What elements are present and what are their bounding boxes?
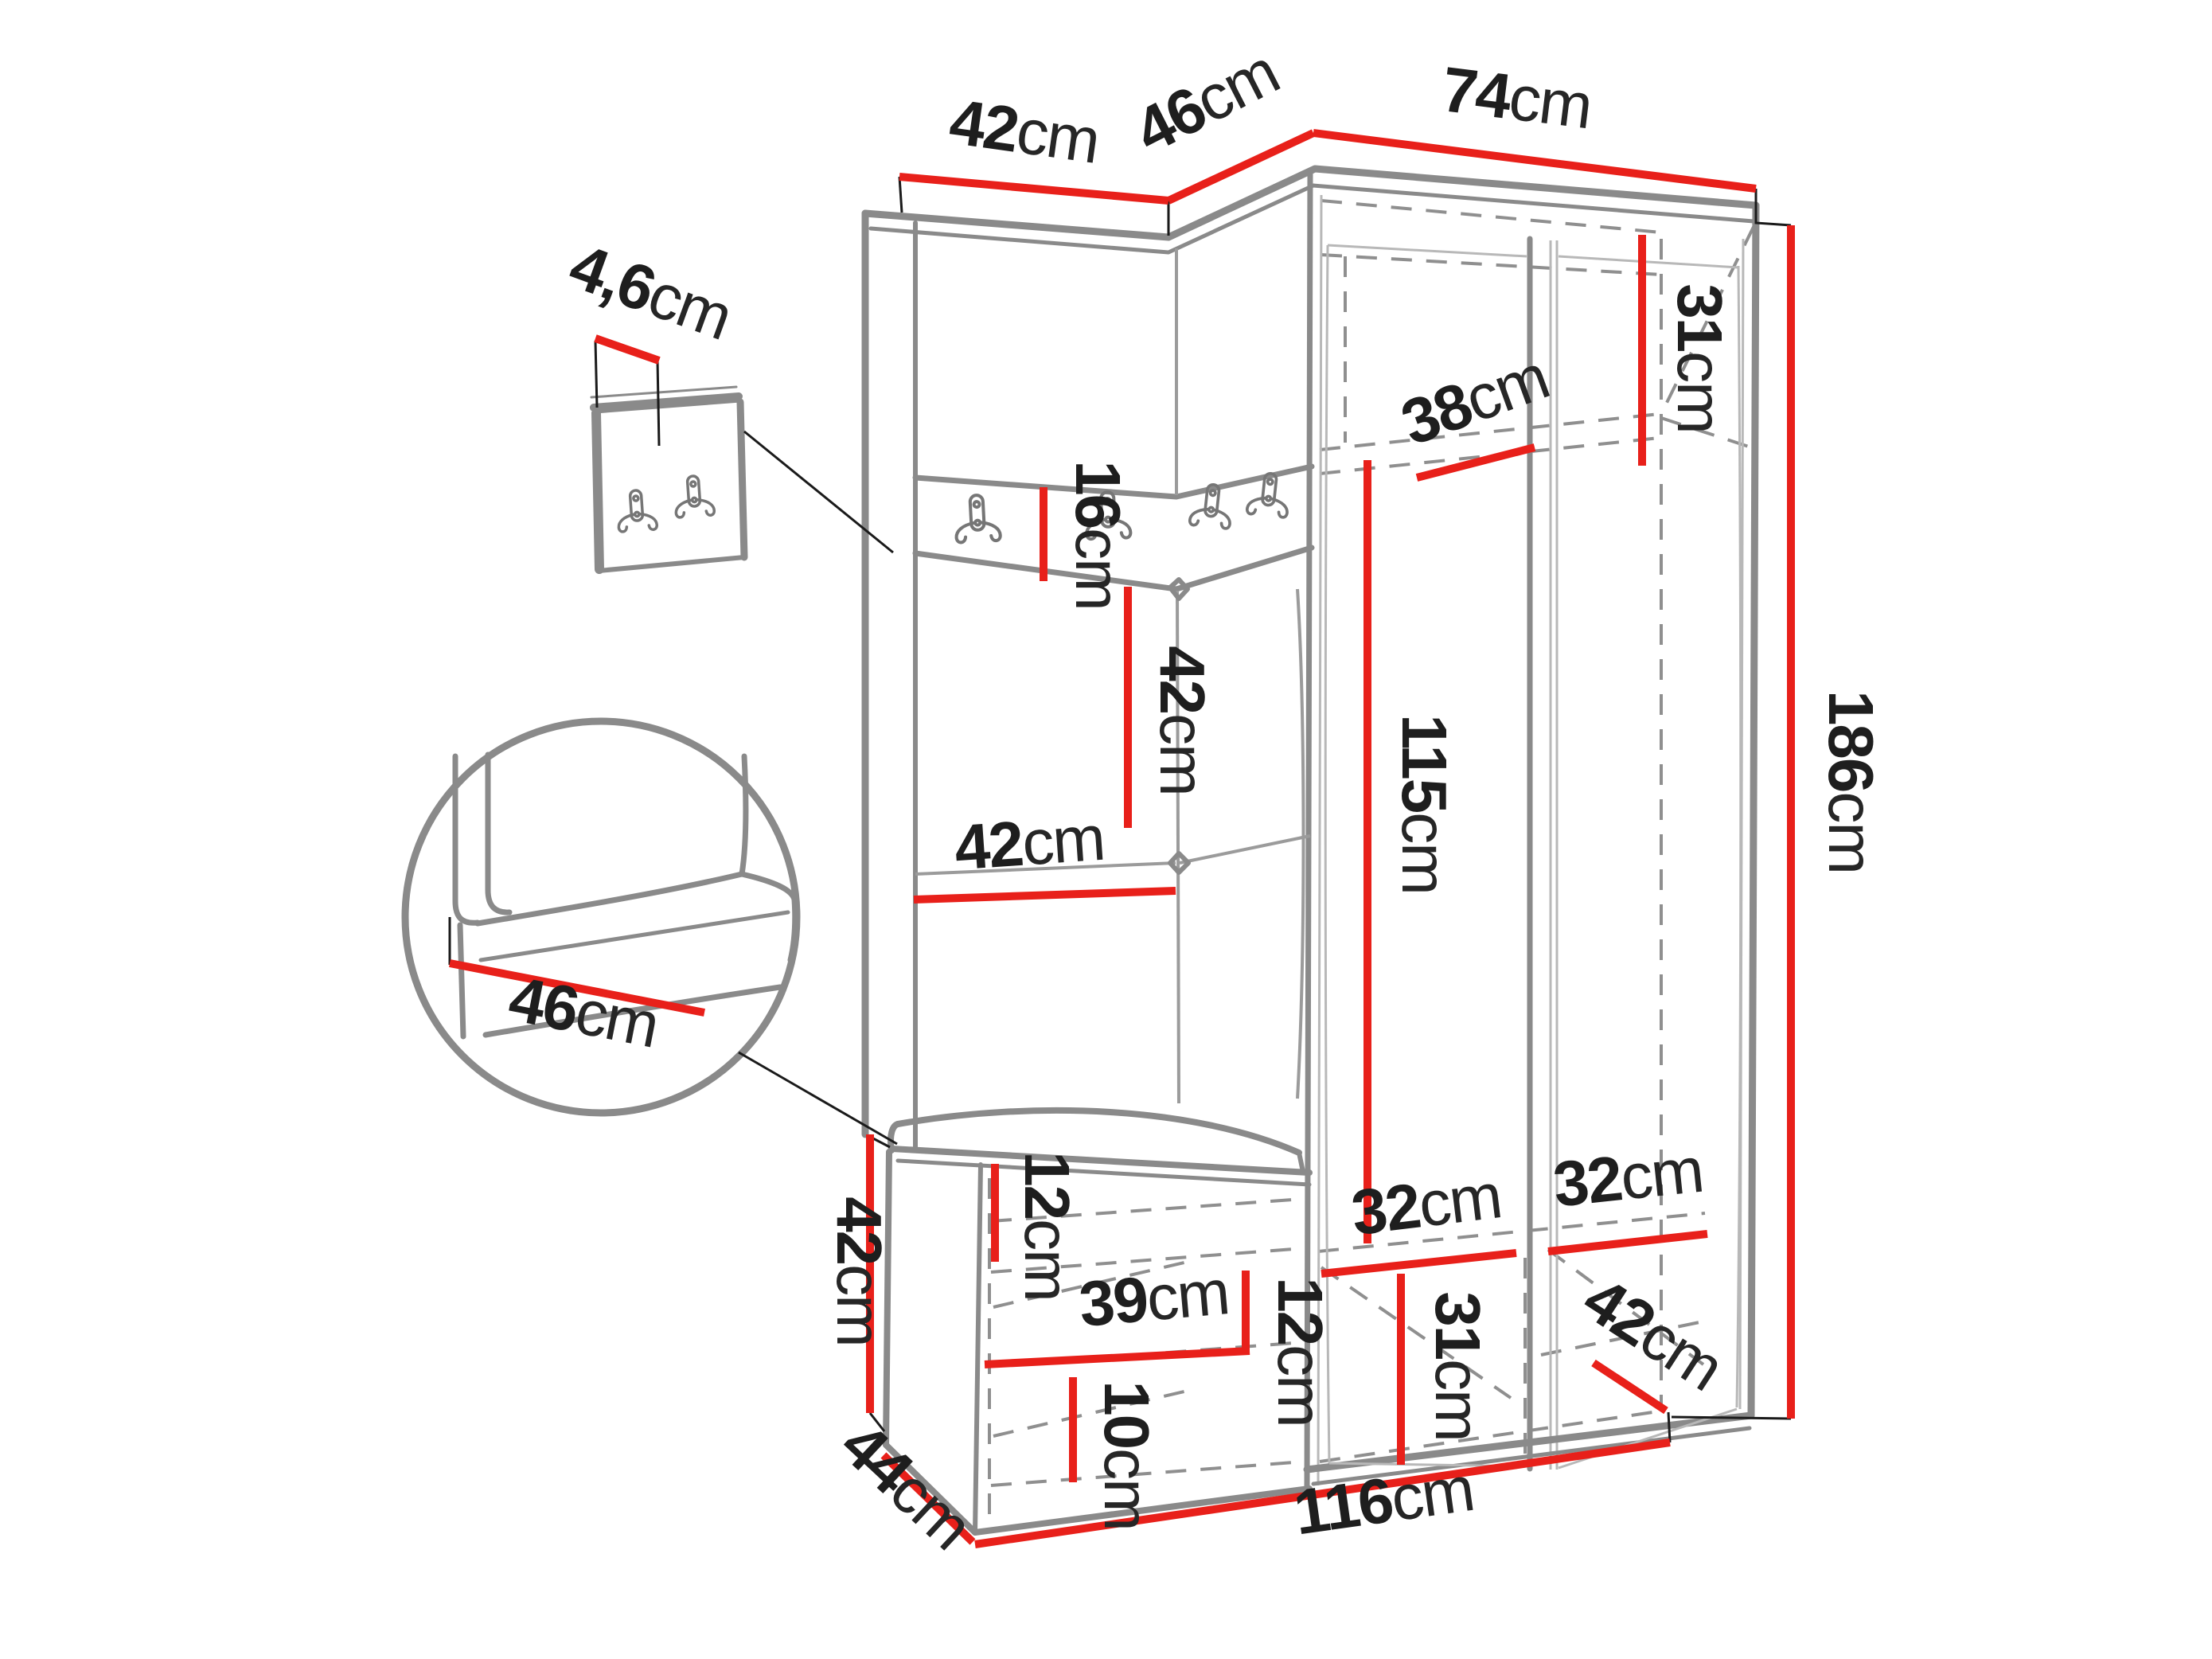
top-left-tick (899, 177, 902, 213)
detail-back-panel-edge-2 (488, 755, 509, 912)
dim-back-panel-width-line (914, 891, 1176, 900)
dim-back-panel-height-label: 42cm (1147, 646, 1218, 795)
dim-seat-depth-detail-label: 46cm (504, 962, 664, 1060)
dim-top-width-right-label: 74cm (1438, 53, 1595, 142)
total-width-tick (1668, 1412, 1670, 1442)
dim-compartment-left-width-line (1321, 1253, 1516, 1274)
detail-circle-outline (405, 721, 797, 1113)
wardrobe-top-back-edge-2 (1321, 255, 1661, 275)
bench-left-front-edge (975, 1165, 981, 1532)
circle-detail-leader (739, 1052, 897, 1144)
detail-circle (405, 721, 797, 1113)
top-right-bracket (1756, 189, 1791, 225)
dim-panel-thickness-label: 4,6cm (561, 230, 741, 353)
bottom-right-bracket (1672, 1417, 1791, 1419)
panel-front-face (595, 400, 744, 571)
dim-bench-top-gap-label: 12cm (1012, 1151, 1083, 1301)
detail-bench-left-edge (460, 925, 463, 1036)
wardrobe-top-back-edge (1321, 201, 1661, 232)
dim-top-width-left-label: 42cm (946, 86, 1103, 177)
dim-panel-thickness-line (595, 338, 659, 361)
coat-hook-icon (673, 474, 714, 517)
panel-right-edge (740, 402, 744, 557)
furniture-dimension-diagram: 42cm 46cm 74cm 4,6cm 31cm 38cm 16cm 42cm… (0, 0, 2212, 1659)
dim-bench-shelf-width-label: 39cm (1076, 1256, 1231, 1340)
panel-top-edge (594, 396, 739, 408)
thickness-ext-left (595, 341, 597, 408)
wall-panel-detail (591, 387, 744, 571)
detail-seat-edge (478, 874, 742, 923)
dim-interior-height-label: 115cm (1389, 714, 1460, 894)
dim-bench-shelf-gap-label: 12cm (1265, 1277, 1336, 1427)
upholstery-corner-curve (1297, 589, 1304, 1099)
bench-top-edge (891, 1149, 1309, 1173)
dim-bench-bottom-gap-label: 10cm (1091, 1380, 1162, 1530)
seat-cushion-top (898, 1111, 1299, 1153)
dim-bench-height-label: 42cm (824, 1196, 895, 1346)
wardrobe-right-edge (1751, 205, 1756, 1415)
dim-wardrobe-depth-label: 42cm (1571, 1263, 1735, 1404)
dim-back-panel-width-label: 42cm (952, 802, 1106, 884)
dim-total-height-label: 186cm (1816, 690, 1886, 873)
dim-top-shelf-height-label: 31cm (1664, 283, 1735, 433)
leader-lines (450, 177, 1791, 1442)
coat-hook-icon (616, 489, 657, 532)
coat-hook-icon (954, 494, 1001, 543)
dim-top-width-right-line (1313, 133, 1756, 189)
dim-compartment-bottom-height-label: 31cm (1422, 1291, 1493, 1441)
diagram-page: 42cm 46cm 74cm 4,6cm 31cm 38cm 16cm 42cm… (0, 0, 2212, 1659)
thickness-ext-right (657, 360, 659, 446)
detail-bench-band-top (481, 912, 788, 960)
detail-back-cushion-edge (742, 756, 746, 874)
panel-bottom-edge (599, 557, 744, 571)
upholstery-seam-right (1180, 836, 1310, 863)
left-door-top (1328, 245, 1527, 256)
right-door-top (1559, 256, 1738, 267)
dim-compartment-right-width-label: 32cm (1550, 1134, 1706, 1220)
dim-top-width-left-line (899, 177, 1168, 201)
panel-left-edge (596, 413, 599, 569)
right-door-edge (1737, 266, 1741, 1407)
bench-top-edge-inner (898, 1161, 1309, 1185)
dim-hook-panel-height-label: 16cm (1063, 460, 1133, 610)
dim-bench-shelf-width-line (985, 1351, 1250, 1364)
dim-top-width-corner-label: 46cm (1124, 36, 1289, 166)
panel-detail-leader (744, 431, 893, 552)
dim-compartment-right-width-line (1548, 1234, 1707, 1251)
dim-bench-depth-label: 44cm (828, 1408, 985, 1562)
